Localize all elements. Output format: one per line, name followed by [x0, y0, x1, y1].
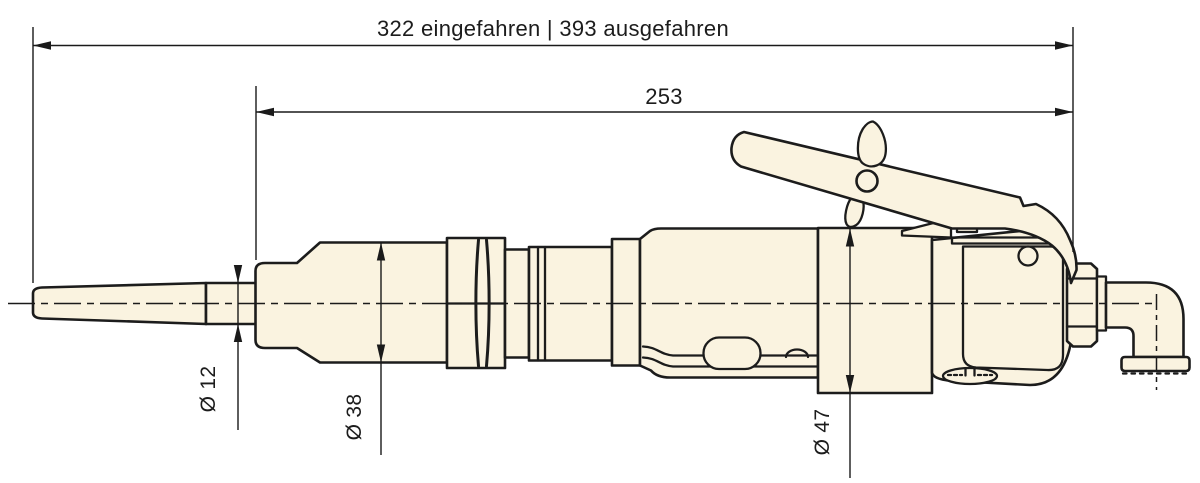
air-inlet-elbow	[1106, 283, 1184, 358]
label-tip-diameter: Ø 12	[197, 366, 220, 413]
housing-hole	[1019, 247, 1038, 266]
elbow-flange	[1122, 357, 1190, 371]
arrowhead-left	[256, 108, 274, 116]
arrowhead-left	[33, 41, 51, 49]
lever-pin-upper	[858, 122, 886, 167]
lever-pivot	[857, 171, 878, 192]
clamp-collar	[612, 239, 640, 366]
nose-piece	[256, 243, 448, 363]
label-overall-length: 322 eingefahren | 393 ausgefahren	[377, 16, 729, 41]
dimension-drawing: 322 eingefahren | 393 ausgefahren 253 Ø …	[0, 0, 1200, 483]
label-nose-diameter: Ø 38	[343, 394, 366, 441]
label-front-section-length: 253	[645, 84, 683, 109]
rear-housing	[932, 229, 1077, 386]
linkage-boss	[704, 338, 761, 370]
drawing-canvas: 322 eingefahren | 393 ausgefahren 253 Ø …	[0, 0, 1200, 483]
arrowhead-right	[1055, 41, 1073, 49]
arrowhead-top	[234, 265, 242, 283]
label-housing-diameter: Ø 47	[811, 409, 834, 456]
clamp-ring	[818, 228, 932, 393]
arrowhead-right	[1055, 108, 1073, 116]
arrowhead-bottom	[234, 324, 242, 342]
